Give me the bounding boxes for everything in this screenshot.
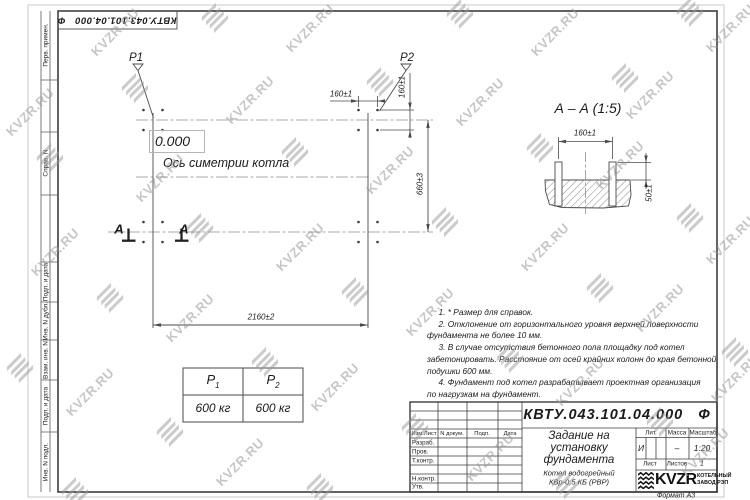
doc-title-line: установку (550, 442, 607, 454)
margin-label-perv-primen: Перв. примен. (43, 23, 50, 66)
drawing-linework (0, 0, 750, 500)
dim-160-horizontal: 160±1 (330, 90, 352, 99)
note-line: забетонировать. Расстояние от осей крайн… (427, 354, 716, 364)
company-sub-line: ЗАВОД РЭП (697, 480, 728, 486)
section-a-a-view (545, 137, 651, 214)
row-label-razrab: Разраб. (412, 439, 434, 446)
doc-title-line: фундамента (544, 454, 615, 466)
section-dim-50: 50±1 (645, 184, 654, 202)
note-line: подушки 600 мм. (427, 366, 492, 376)
margin-label-vzam-inv: Взам. инв. N (43, 341, 50, 379)
header-col-izm-list: Изм.Лист (411, 431, 436, 437)
drawing-designation: КВТУ.043.101.04.000 Ф (523, 407, 710, 423)
load-point-p2-label: P2 (400, 52, 414, 64)
header-col-n-dokum: N докум. (440, 431, 463, 437)
product-name-line: КВр-0,5 КБ (РВР) (549, 478, 609, 487)
company-sub-line: КОТЕЛЬНЫЙ (697, 473, 731, 479)
sheet-border (28, 5, 724, 497)
section-letter-left: А (114, 222, 123, 237)
sheets-value: 1 (700, 461, 704, 468)
lit-label: Лит. (645, 430, 657, 437)
section-letter-right: А (179, 222, 188, 237)
company-name: KVZR (655, 471, 697, 489)
note-line: фундамента не более 10 мм. (427, 330, 542, 340)
scale-value: 1:20 (694, 443, 711, 453)
plan-view (108, 64, 433, 328)
sheet-label: Лист (643, 461, 657, 468)
load-point-leaders (133, 64, 411, 118)
load-table-header-p1: P1 (206, 372, 219, 390)
kvzr-logo-icon (638, 472, 654, 489)
lit-value: И (638, 443, 644, 453)
level-mark: 0.000 (155, 133, 190, 149)
header-col-podp: Подп. (474, 431, 489, 437)
product-name-line: Котел водогрейный (543, 469, 614, 478)
row-label-tkontr: Т.контр. (412, 457, 434, 464)
level-mark-box: 0.000 (149, 130, 205, 153)
note-line: 3. В случае отсутствия бетонного пола пл… (427, 342, 685, 352)
note-line: по нагрузкам на фундамент. (427, 389, 541, 399)
row-label-prov: Пров. (412, 448, 428, 455)
margin-label-inv-dubl: Инв. N дубл. (43, 302, 50, 340)
margin-label-podp-data-1: Подп. и дата (43, 263, 50, 301)
note-line: 4. Фундамент под котел разрабатывает про… (427, 377, 701, 387)
dim-2160: 2160±2 (248, 313, 275, 322)
margin-label-podp-data-2: Подп. и дата (43, 387, 50, 425)
load-table-value-p1: 600 кг (196, 401, 231, 415)
dim-160-vertical: 160±1 (398, 76, 407, 98)
header-col-data: Дата (504, 431, 517, 437)
boiler-axis-label: Ось симетрии котла (163, 156, 289, 170)
row-label-nkontr: Н.контр. (412, 475, 436, 482)
top-designation-stamp: КВТУ.043.101.04.000 Ф (57, 15, 176, 26)
load-table-header-p2: P2 (266, 372, 279, 390)
anchor-bolt-points (142, 109, 379, 244)
sheets-label: Листов (667, 461, 687, 468)
format-label: Формат А3 (657, 492, 695, 499)
scale-label: Масштаб (690, 430, 717, 437)
dim-660: 660±3 (416, 173, 425, 195)
anchor-bolt-right (609, 162, 616, 206)
row-label-utv: Утв. (412, 484, 424, 491)
load-point-p1-label: P1 (129, 52, 143, 64)
section-title: А – А (1:5) (555, 100, 622, 116)
note-line: 1. * Размер для справок. (427, 307, 533, 317)
margin-label-inv-podl: Инв. N подл. (43, 443, 50, 481)
drawing-sheet: КВТУ.043.101.04.000 Ф Перв. примен. Спра… (0, 0, 750, 500)
doc-title-line: Задание на (548, 430, 609, 442)
note-line: 2. Отклонение от горизонтального уровня … (427, 319, 698, 329)
mass-label: Масса (668, 430, 687, 437)
section-dim-160: 160±1 (574, 129, 596, 138)
mass-value: – (675, 443, 680, 453)
margin-label-sprav-n: Справ. N (43, 149, 50, 176)
load-table-value-p2: 600 кг (256, 401, 291, 415)
anchor-bolt-left (555, 162, 562, 206)
